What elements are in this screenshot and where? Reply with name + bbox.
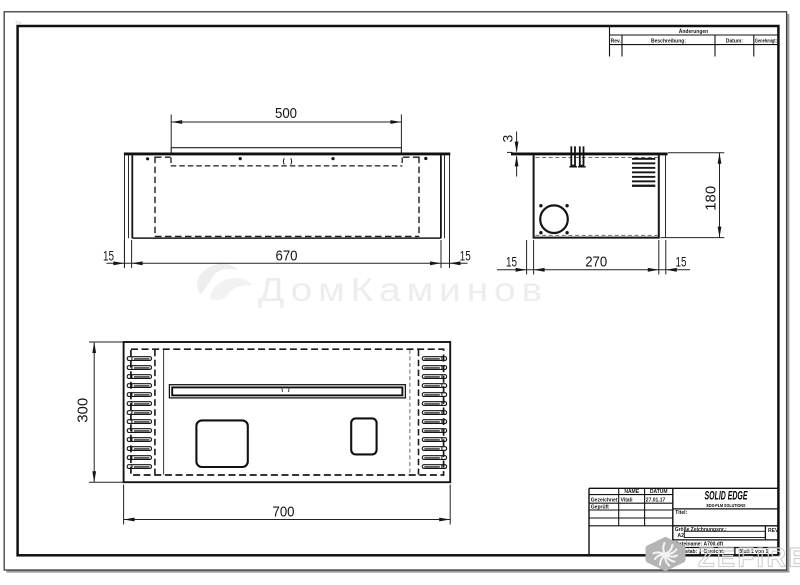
svg-text:ДомКаминов: ДомКаминов — [258, 271, 548, 308]
svg-text:27.01.17: 27.01.17 — [646, 498, 666, 504]
svg-text:Beschreibung:: Beschreibung: — [651, 39, 686, 45]
svg-text:ZEFIRE: ZEFIRE — [698, 543, 800, 573]
svg-text:Vitali: Vitali — [621, 498, 633, 504]
svg-text:3: 3 — [500, 135, 516, 143]
svg-text:15: 15 — [676, 254, 687, 270]
svg-text:REV: REV — [768, 528, 779, 534]
svg-text:15: 15 — [103, 248, 114, 264]
svg-text:Po.: Po. — [16, 20, 23, 25]
svg-text:500: 500 — [275, 105, 297, 122]
svg-text:Gezeichnet: Gezeichnet — [591, 498, 618, 504]
svg-text:Genehmigt:: Genehmigt: — [755, 39, 777, 45]
svg-text:NAME: NAME — [624, 489, 639, 495]
svg-text:Rev.: Rev. — [611, 39, 622, 45]
svg-text:15: 15 — [460, 248, 471, 264]
svg-text:180: 180 — [703, 186, 720, 211]
svg-text:Titel:: Titel: — [675, 510, 687, 516]
svg-text:270: 270 — [585, 254, 607, 271]
svg-text:Datum:: Datum: — [726, 39, 744, 45]
svg-text:15: 15 — [506, 254, 517, 270]
svg-text:700: 700 — [273, 503, 295, 520]
svg-text:670: 670 — [276, 248, 298, 265]
svg-text:SOLID EDGE: SOLID EDGE — [705, 491, 748, 503]
svg-text:A2: A2 — [678, 533, 685, 539]
svg-text:300: 300 — [75, 398, 92, 423]
svg-text:DATUM: DATUM — [650, 489, 668, 495]
svg-text:Geprüft: Geprüft — [591, 505, 609, 511]
svg-text:EDS-PLM SOLUTIONS: EDS-PLM SOLUTIONS — [707, 503, 746, 508]
svg-text:Änderungen: Änderungen — [679, 28, 708, 35]
